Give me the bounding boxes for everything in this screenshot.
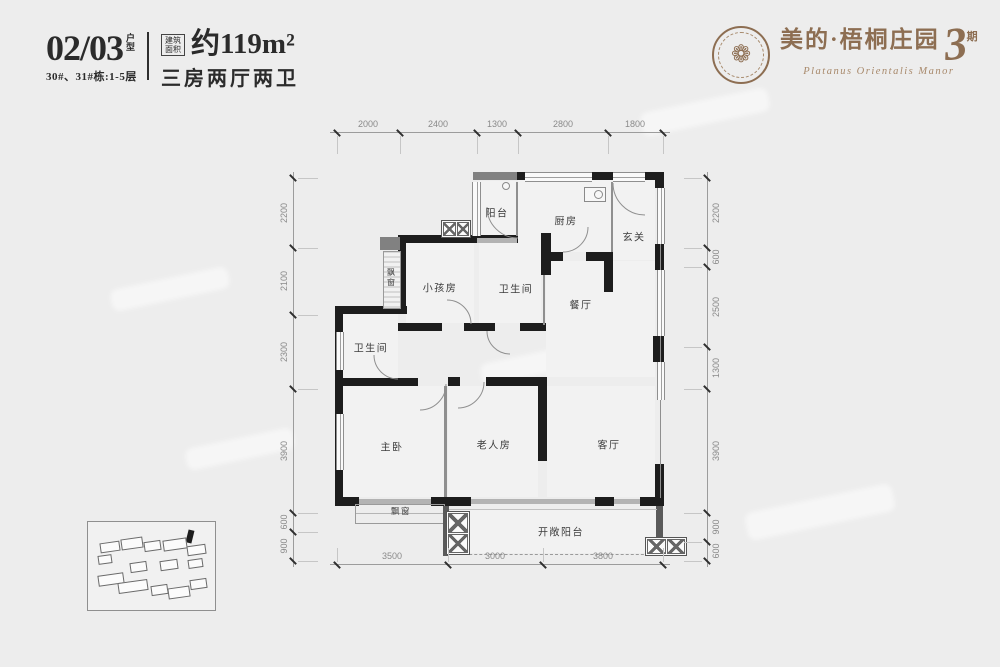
wall [380, 237, 400, 250]
brand-logo: ❁ 美的·梧桐庄园 3 期 Platanus Orientalis Manor [712, 26, 978, 84]
area-tag: 建筑面积 [161, 34, 185, 56]
extension-line [518, 136, 519, 154]
extension-line [337, 136, 338, 154]
extension-line [400, 136, 401, 154]
extension-line [543, 548, 544, 562]
dimension-tick [539, 561, 547, 569]
dimension-line [330, 564, 670, 565]
dimension-label: 3900 [711, 441, 721, 461]
extension-line [684, 248, 702, 249]
wall [516, 182, 518, 236]
watermark [744, 483, 897, 542]
medallion-icon: ❁ [712, 26, 770, 84]
watermark [109, 266, 231, 312]
unit-number: 02/03 [46, 30, 123, 66]
room-label-bay-window: 飘窗 [391, 505, 411, 517]
wall [444, 386, 447, 497]
site-building [187, 558, 203, 569]
wall [475, 323, 495, 331]
room-fill [613, 180, 655, 260]
dimension-label: 600 [279, 514, 289, 529]
site-building [120, 537, 143, 551]
room-fill [546, 261, 655, 377]
header-divider [147, 32, 149, 80]
site-building [167, 586, 190, 600]
kitchen-sink-icon [584, 187, 606, 202]
extension-line [298, 513, 318, 514]
room-label-living-room: 客厅 [598, 437, 621, 452]
dimension-label: 2000 [358, 119, 378, 129]
wall [444, 497, 471, 506]
unit-block: 02/03 户型 30#、31#栋:1-5层 [46, 30, 137, 84]
extension-line [298, 315, 318, 316]
room-label-kids-room: 小孩房 [423, 280, 458, 295]
wall [543, 275, 545, 325]
site-building [186, 544, 206, 557]
dimension-label: 2200 [711, 203, 721, 223]
wall [473, 172, 517, 180]
extension-line [663, 136, 664, 154]
site-building [189, 578, 207, 590]
window [525, 172, 592, 182]
dimension-label: 3500 [382, 551, 402, 561]
window [613, 172, 645, 182]
room-label-balcony: 阳台 [486, 205, 509, 220]
extension-line [298, 532, 318, 533]
dimension-label: 2500 [711, 297, 721, 317]
brand-name: 美的·梧桐庄园 [780, 26, 940, 54]
balcony-line [449, 509, 657, 510]
dimension-label: 2200 [279, 203, 289, 223]
site-building [162, 537, 187, 551]
window [657, 362, 665, 400]
room-label-open-balcony: 开敞阳台 [538, 524, 584, 539]
wall [543, 252, 563, 261]
wall [486, 377, 542, 386]
wall [604, 252, 613, 292]
extension-line [298, 389, 318, 390]
dimension-tick [333, 561, 341, 569]
window-sill [614, 499, 640, 504]
room-label-master-bedroom: 主卧 [381, 439, 404, 454]
window-sill [477, 238, 517, 243]
room-label-kitchen: 厨房 [555, 213, 578, 228]
dimension-label: 600 [711, 249, 721, 264]
dimension-label: 600 [711, 543, 721, 558]
wall [398, 323, 442, 331]
dimension-label: 2100 [279, 271, 289, 291]
plan-header: 02/03 户型 30#、31#栋:1-5层 建筑面积 约119m² 三房两厅两… [46, 30, 299, 91]
site-building [97, 554, 112, 565]
window [657, 270, 665, 336]
dimension-tick [444, 561, 452, 569]
extension-line [684, 542, 702, 543]
ac-unit-icon [441, 220, 471, 238]
dimension-label: 1300 [711, 358, 721, 378]
extension-line [684, 561, 702, 562]
wall [655, 172, 664, 188]
extension-line [298, 248, 318, 249]
dimension-line [293, 172, 294, 567]
room-label-elder-room: 老人房 [477, 437, 512, 452]
wall [595, 497, 614, 506]
site-building [150, 584, 168, 596]
extension-line [477, 136, 478, 154]
extension-line [684, 389, 702, 390]
extension-line [298, 561, 318, 562]
site-building [159, 559, 178, 571]
dimension-label: 3800 [593, 551, 613, 561]
dimension-label: 3000 [485, 551, 505, 561]
dimension-label: 2400 [428, 119, 448, 129]
wall [640, 497, 664, 506]
room-label-dining: 餐厅 [570, 297, 593, 312]
dimension-label: 900 [711, 519, 721, 534]
balcony-open-edge [449, 553, 659, 555]
floorplan-page: 02/03 户型 30#、31#栋:1-5层 建筑面积 约119m² 三房两厅两… [0, 0, 1000, 667]
site-highlighted-building [186, 529, 195, 543]
dimension-label: 1800 [625, 119, 645, 129]
extension-line [337, 548, 338, 562]
sliding-door-sill [471, 499, 595, 504]
window [657, 188, 665, 244]
wall [448, 377, 460, 386]
dimension-label: 1300 [487, 119, 507, 129]
dimension-label: 900 [279, 538, 289, 553]
wall [538, 377, 547, 461]
wall [653, 336, 664, 362]
window [472, 182, 481, 236]
site-building [99, 541, 120, 554]
drain-icon [502, 182, 510, 190]
site-building [143, 540, 161, 552]
site-building [129, 561, 147, 573]
dimension-line [330, 132, 670, 133]
dimension-label: 2300 [279, 342, 289, 362]
extension-line [684, 178, 702, 179]
extension-line [684, 513, 702, 514]
extension-line [298, 178, 318, 179]
room-label-bay-window: 飘窗 [386, 268, 397, 288]
wall [611, 182, 613, 252]
area-value: 约119m² [191, 30, 295, 59]
unit-type-label: 户型 [126, 34, 137, 53]
dimension-label: 2800 [553, 119, 573, 129]
ac-unit-icon [645, 537, 687, 556]
extension-line [684, 347, 702, 348]
buildings-floors: 30#、31#栋:1-5层 [46, 68, 137, 84]
dimension-line [707, 172, 708, 567]
wall [464, 323, 476, 331]
phase-suffix: 期 [967, 28, 978, 44]
logo-text: 美的·梧桐庄园 3 期 Platanus Orientalis Manor [780, 26, 978, 77]
ac-unit-icon [446, 511, 470, 555]
room-label-bathroom-2: 卫生间 [354, 340, 389, 355]
window [336, 332, 344, 370]
extension-line [448, 548, 449, 562]
area-block: 建筑面积 约119m² 三房两厅两卫 [161, 30, 299, 91]
dimension-label: 3900 [279, 441, 289, 461]
extension-line [663, 548, 664, 562]
room-label-entry: 玄关 [623, 229, 646, 244]
extension-line [684, 267, 702, 268]
wall [342, 378, 418, 386]
room-label-bathroom-1: 卫生间 [499, 281, 534, 296]
site-plan-minimap [87, 521, 216, 611]
phase-number: 3 [942, 25, 969, 64]
dimension-tick [659, 561, 667, 569]
layout-text: 三房两厅两卫 [161, 62, 299, 91]
window [336, 414, 344, 470]
extension-line [608, 136, 609, 154]
